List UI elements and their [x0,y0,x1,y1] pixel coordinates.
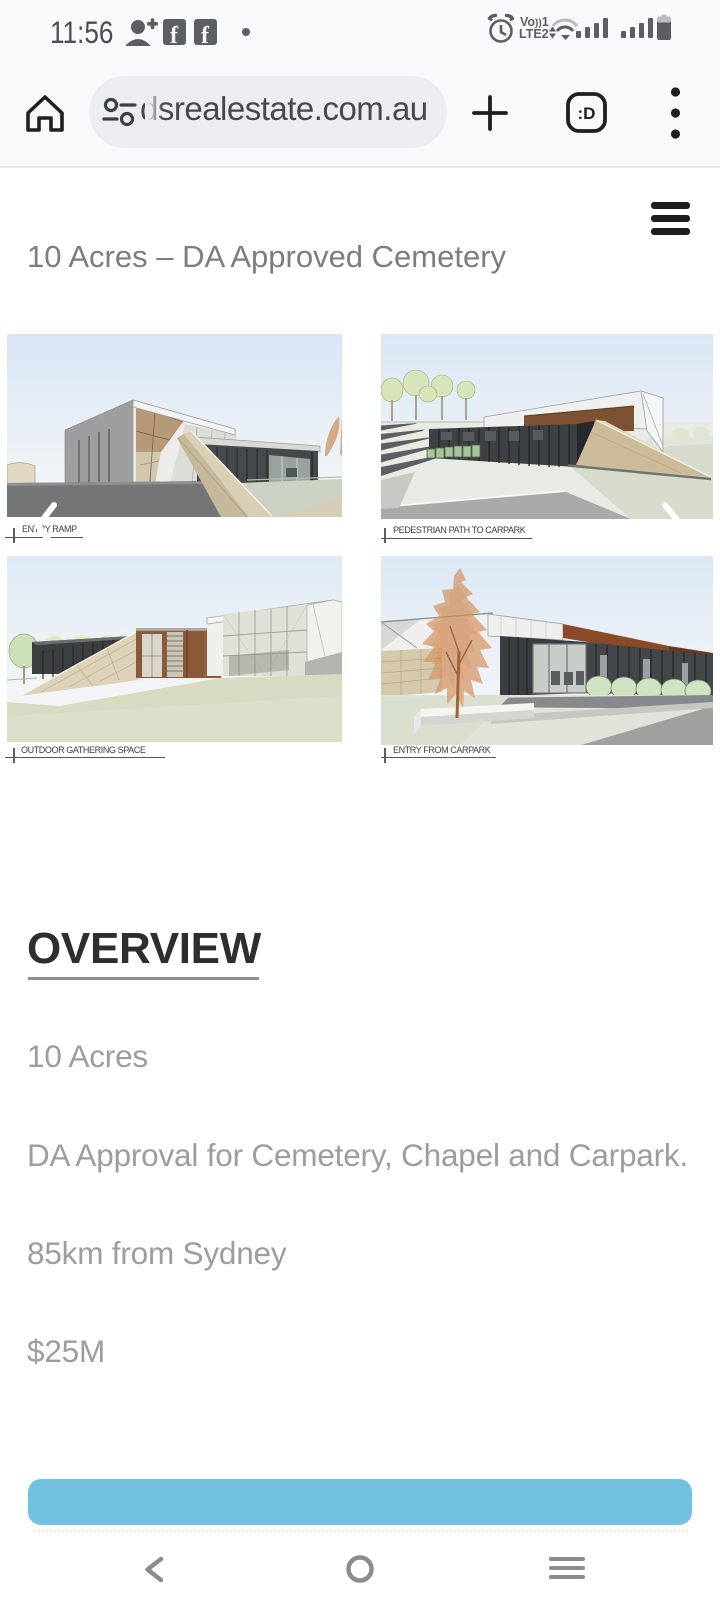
svg-text:f: f [170,23,179,49]
svg-text:LTE2: LTE2 [519,27,549,41]
svg-text:f: f [201,23,210,49]
svg-text::D: :D [578,104,596,123]
